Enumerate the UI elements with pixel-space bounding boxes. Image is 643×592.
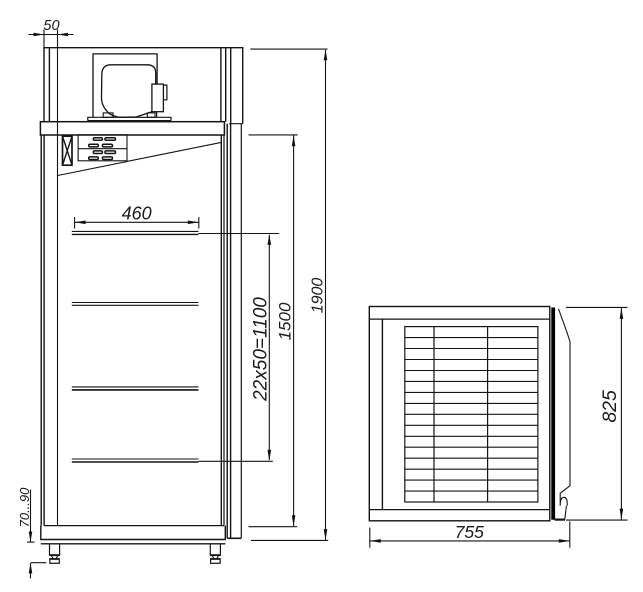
- svg-text:825: 825: [599, 390, 621, 423]
- svg-text:1500: 1500: [276, 302, 295, 340]
- svg-text:460: 460: [122, 204, 152, 224]
- svg-text:70...90: 70...90: [17, 487, 32, 528]
- svg-text:22x50=1100: 22x50=1100: [251, 297, 272, 402]
- svg-text:1900: 1900: [309, 278, 326, 314]
- svg-text:50: 50: [43, 18, 59, 34]
- svg-text:755: 755: [455, 522, 484, 542]
